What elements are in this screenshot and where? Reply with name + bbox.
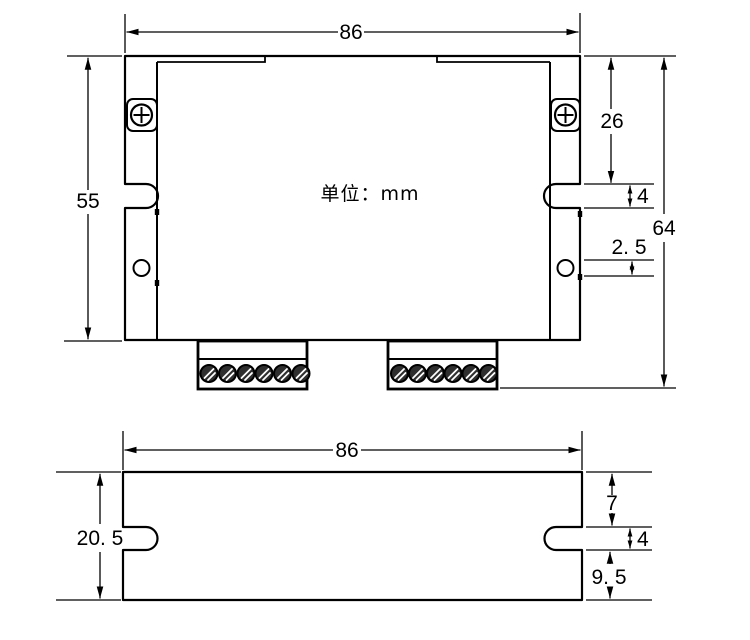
terminal-block-left: [198, 341, 310, 389]
dim-bottom-height-label: 20. 5: [77, 527, 124, 550]
dim-body-height: 55: [64, 56, 122, 341]
dim-hole-diameter-label: 2. 5: [611, 236, 646, 259]
unit-label: 单位：mm: [320, 183, 419, 205]
dim-bottom-height: 20. 5: [56, 472, 123, 600]
dim-slot-to-bottom-label: 9. 5: [591, 566, 626, 589]
dim-top-width-label: 86: [339, 21, 362, 44]
dim-bottom-width-label: 86: [335, 439, 358, 462]
dim-bottom-width: 86: [123, 431, 582, 470]
terminal-block-right: [388, 341, 497, 389]
dim-top-to-slot: 26: [584, 56, 676, 184]
dim-top-width: 86: [125, 13, 580, 53]
dim-slot-width-bottom: 4: [586, 528, 652, 551]
drawing-canvas: 单位：mm 86 55 26 4: [0, 0, 750, 640]
dim-overall-height-label: 64: [652, 217, 676, 240]
dim-top-to-slot-label: 26: [600, 110, 623, 133]
dim-bottom-top-to-slot-label: 7: [606, 492, 618, 515]
dim-slot-to-bottom: 9. 5: [586, 552, 652, 600]
dim-slot-width-bottom-label: 4: [637, 528, 649, 551]
dim-body-height-label: 55: [76, 190, 99, 213]
dim-hole-diameter: 2. 5: [584, 236, 654, 276]
bottom-view: 86 20. 5 7 4 9. 5: [56, 431, 652, 600]
dim-bottom-top-to-slot: 7: [586, 472, 652, 527]
dim-slot-width-top-label: 4: [637, 185, 649, 208]
mechanical-dimension-drawing: 单位：mm 86 55 26 4: [0, 0, 750, 640]
top-view: 单位：mm 86 55 26 4: [64, 13, 676, 389]
dim-slot-width-top: 4: [584, 185, 654, 208]
bottom-view-outline: [123, 472, 582, 600]
